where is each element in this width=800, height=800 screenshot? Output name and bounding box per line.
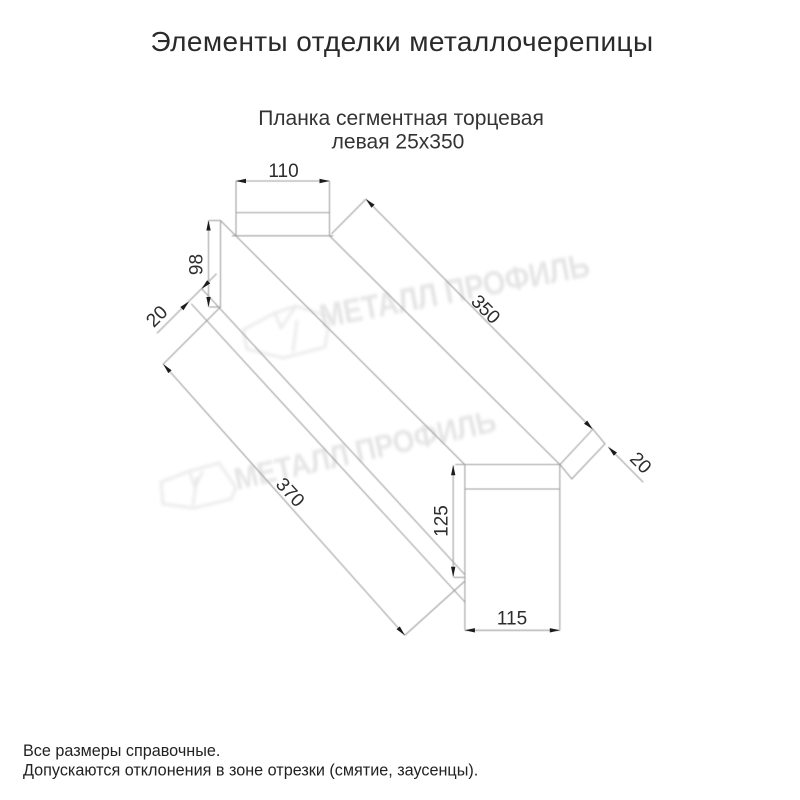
svg-text:левая 25х350: левая 25х350 [332,131,465,154]
svg-text:115: 115 [497,609,527,630]
svg-text:110: 110 [268,161,298,182]
svg-text:Планка сегментная торцевая: Планка сегментная торцевая [258,107,544,130]
svg-text:98: 98 [187,254,208,275]
svg-text:125: 125 [432,505,453,537]
svg-text:Допускаются отклонения в зоне: Допускаются отклонения в зоне отрезки (с… [23,762,478,780]
svg-text:Все размеры справочные.: Все размеры справочные. [23,742,220,760]
svg-text:Элементы отделки металлочерепи: Элементы отделки металлочерепицы [151,26,654,57]
